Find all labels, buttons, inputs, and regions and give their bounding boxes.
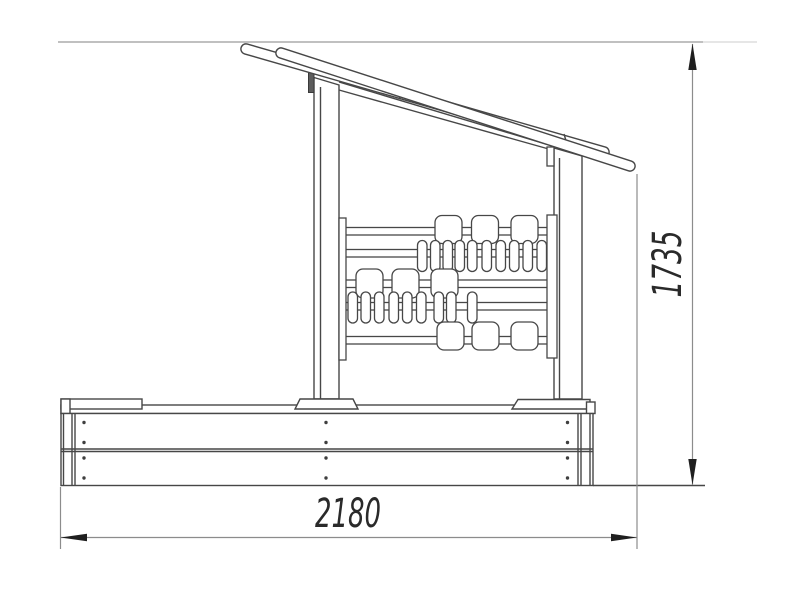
- screw-dot: [566, 421, 569, 424]
- roof: [246, 49, 630, 166]
- abacus-bead-small: [468, 292, 478, 323]
- front-post-base-plate: [295, 399, 358, 409]
- screw-dot: [82, 456, 85, 459]
- sandbox-left-seat-cap: [61, 399, 142, 409]
- abacus-bead-small: [389, 292, 399, 323]
- dim-arrow-top: [688, 44, 696, 71]
- technical-drawing-sandbox-canopy: 2180 1735: [0, 0, 800, 600]
- width-dimension-label: 2180: [315, 491, 381, 537]
- under-beam-bottom-edge: [339, 90, 554, 151]
- abacus-bead-large: [437, 322, 464, 350]
- screw-dot: [566, 441, 569, 444]
- abacus-bead-large: [472, 322, 499, 350]
- abacus-bead-small: [403, 292, 413, 323]
- rear-post-top-bracket: [547, 147, 554, 166]
- screw-dot: [82, 441, 85, 444]
- abacus-bead-large: [472, 216, 499, 244]
- abacus-bead-large: [511, 216, 538, 244]
- abacus-bead-small: [482, 241, 492, 272]
- abacus-bead-small: [361, 292, 371, 323]
- dimension-height: 1735: [645, 44, 697, 486]
- sandbox: [61, 399, 705, 486]
- sandbox-right-seat-cap: [512, 400, 590, 410]
- abacus-bead-small: [375, 292, 385, 323]
- abacus-beads-row1-large: [435, 216, 538, 244]
- sandbox-right-corner-block: [587, 402, 596, 414]
- screw-dot: [82, 476, 85, 479]
- drawing-canvas: 2180 1735: [0, 0, 800, 600]
- abacus-bead-small: [443, 241, 453, 272]
- dim-arrow-left: [61, 534, 88, 542]
- sandbox-left-corner-block: [61, 399, 70, 414]
- screw-dot: [324, 456, 327, 459]
- abacus-beads-row5-large: [437, 322, 538, 350]
- abacus-bead-small: [447, 292, 457, 323]
- screw-dot: [324, 421, 327, 424]
- screw-dot: [566, 456, 569, 459]
- abacus-bead-small: [455, 241, 465, 272]
- abacus-bead-small: [510, 241, 520, 272]
- abacus-bead-small: [496, 241, 506, 272]
- abacus-bead-small: [431, 241, 441, 272]
- dim-arrow-right: [611, 534, 637, 542]
- front-post-top-bracket: [309, 73, 315, 93]
- abacus-bead-small: [348, 292, 358, 323]
- abacus-bead-small: [537, 241, 547, 272]
- screw-dot: [324, 476, 327, 479]
- abacus-panel: [339, 215, 557, 360]
- abacus-beads-row2-small: [418, 241, 547, 272]
- front-post: [309, 73, 340, 400]
- roof-under-beam: [339, 82, 554, 151]
- rear-post-body: [554, 148, 582, 399]
- abacus-bead-small: [468, 241, 478, 272]
- abacus-bead-large: [511, 322, 538, 350]
- dim-arrow-bottom: [688, 459, 696, 485]
- screw-dot: [324, 441, 327, 444]
- abacus-bead-small: [523, 241, 533, 272]
- abacus-bead-small: [417, 292, 427, 323]
- abacus-left-rail: [339, 218, 346, 360]
- abacus-bead-small: [418, 241, 428, 272]
- screw-dot: [82, 421, 85, 424]
- screw-dot: [566, 476, 569, 479]
- abacus-right-rail: [547, 215, 557, 358]
- abacus-bead-large: [435, 216, 462, 244]
- height-dimension-label: 1735: [645, 231, 691, 298]
- front-post-body: [314, 78, 339, 400]
- abacus-bead-small: [434, 292, 444, 323]
